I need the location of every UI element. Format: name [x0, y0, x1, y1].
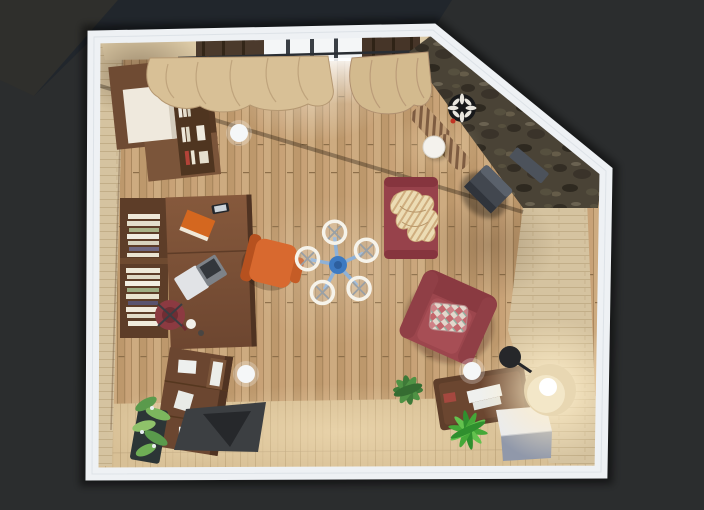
book — [129, 228, 159, 232]
red-box — [443, 392, 456, 403]
task-chair[interactable] — [155, 300, 185, 330]
book-stack — [199, 151, 209, 164]
lamp-bulb — [539, 378, 557, 396]
daybed-footboard — [384, 250, 438, 259]
fan-hub-center — [334, 261, 342, 269]
flower — [152, 444, 156, 448]
daybed[interactable] — [384, 177, 438, 259]
book — [125, 281, 160, 286]
book — [128, 214, 160, 219]
book — [126, 307, 160, 312]
book — [127, 314, 159, 318]
pillow-body — [429, 302, 469, 333]
bookshelf-divider — [120, 258, 168, 264]
book — [129, 247, 159, 251]
book-stack — [196, 125, 206, 141]
flower — [140, 430, 144, 434]
book — [127, 221, 160, 226]
ceiling-light[interactable] — [230, 124, 248, 142]
ceiling-light[interactable] — [463, 362, 481, 380]
floor-plan-render — [0, 0, 704, 510]
red-marker — [451, 119, 456, 124]
flower — [150, 406, 154, 410]
paper — [178, 360, 197, 374]
book — [128, 301, 158, 305]
curtain-left — [147, 56, 334, 112]
daybed-headboard — [384, 177, 438, 187]
mug[interactable] — [186, 319, 196, 329]
book — [127, 234, 159, 239]
small-cup[interactable] — [198, 330, 204, 336]
floor-plan-stage — [0, 0, 704, 510]
pillow[interactable] — [429, 302, 469, 333]
curtain-right — [350, 52, 432, 114]
arc-lamp-head — [499, 346, 521, 368]
book — [127, 275, 160, 279]
book — [128, 321, 159, 326]
book — [127, 288, 159, 292]
book — [126, 294, 159, 299]
ceiling-light[interactable] — [237, 365, 255, 383]
book — [126, 268, 160, 273]
rug[interactable] — [174, 402, 266, 452]
clock-center — [460, 106, 465, 111]
book — [128, 241, 159, 245]
curtains[interactable] — [147, 52, 432, 114]
book — [127, 253, 159, 257]
table-top — [423, 136, 445, 158]
